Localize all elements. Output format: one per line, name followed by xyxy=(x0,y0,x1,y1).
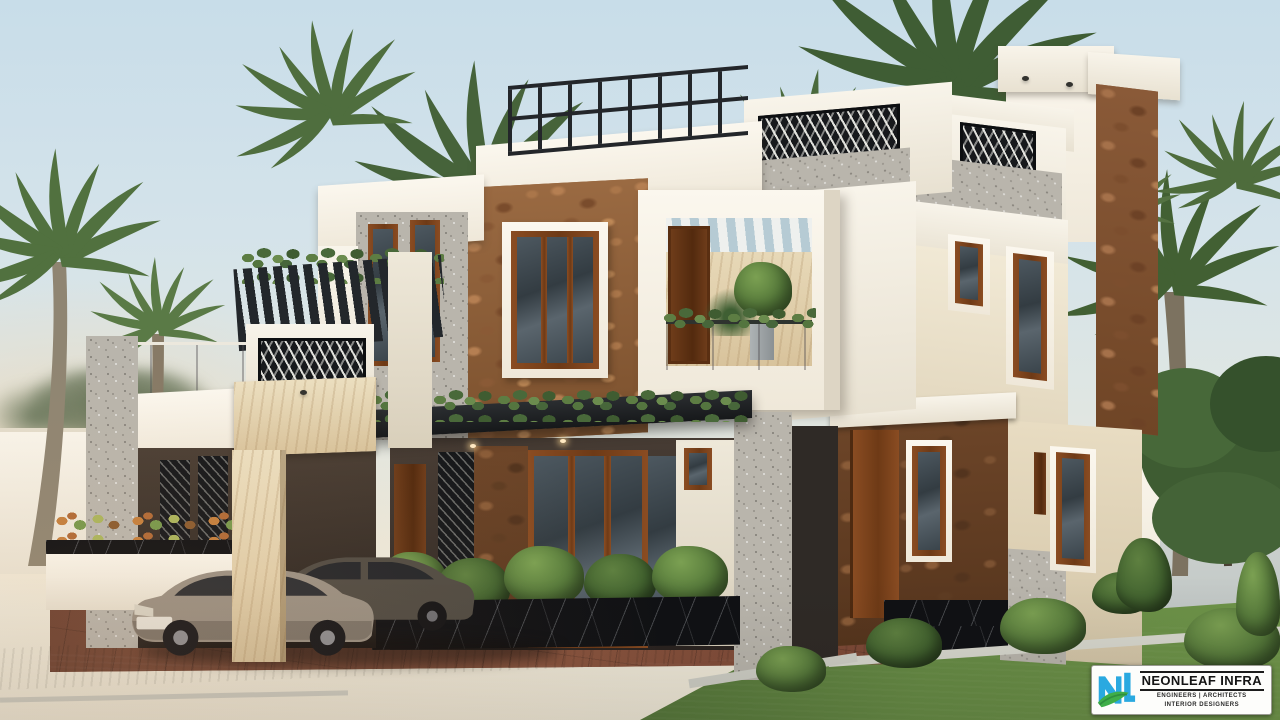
window-mullion xyxy=(541,237,547,363)
downlight xyxy=(300,390,307,395)
watermark-logo: NEONLEAF INFRA ENGINEERS | ARCHITECTS IN… xyxy=(1091,665,1272,715)
slit-window xyxy=(1034,452,1046,515)
window-glass xyxy=(689,453,707,485)
tagline-2: INTERIOR DESIGNERS xyxy=(1164,702,1239,709)
window-glass xyxy=(918,452,940,550)
downlight xyxy=(1022,76,1029,81)
entry-door xyxy=(850,430,899,618)
window-mullion xyxy=(567,237,573,363)
shrub xyxy=(504,546,584,606)
portico-beam xyxy=(234,377,376,456)
canopy-light xyxy=(560,439,566,443)
lawn-bush xyxy=(756,646,826,692)
window-glass xyxy=(960,246,978,300)
nl-monogram-icon xyxy=(1096,670,1136,710)
lawn-bush xyxy=(1000,598,1086,654)
pergola-column xyxy=(388,252,432,448)
portico-column xyxy=(232,450,286,662)
balcony-frame-shade xyxy=(824,190,840,410)
textured-pillar xyxy=(734,412,792,680)
shrub xyxy=(652,546,728,604)
window-glass xyxy=(517,237,593,363)
window-glass xyxy=(1062,458,1084,560)
canopy-light xyxy=(470,444,476,448)
stone-tower xyxy=(1096,84,1158,436)
creeper-plants xyxy=(660,306,816,330)
downlight xyxy=(1066,82,1073,87)
window-glass xyxy=(1019,259,1041,374)
company-name: NEONLEAF INFRA xyxy=(1140,671,1264,691)
tagline-1: ENGINEERS | ARCHITECTS xyxy=(1157,693,1247,700)
architectural-render: NEONLEAF INFRA ENGINEERS | ARCHITECTS IN… xyxy=(0,0,1280,720)
recess-shadow xyxy=(792,426,838,658)
lawn-bush xyxy=(866,618,942,668)
